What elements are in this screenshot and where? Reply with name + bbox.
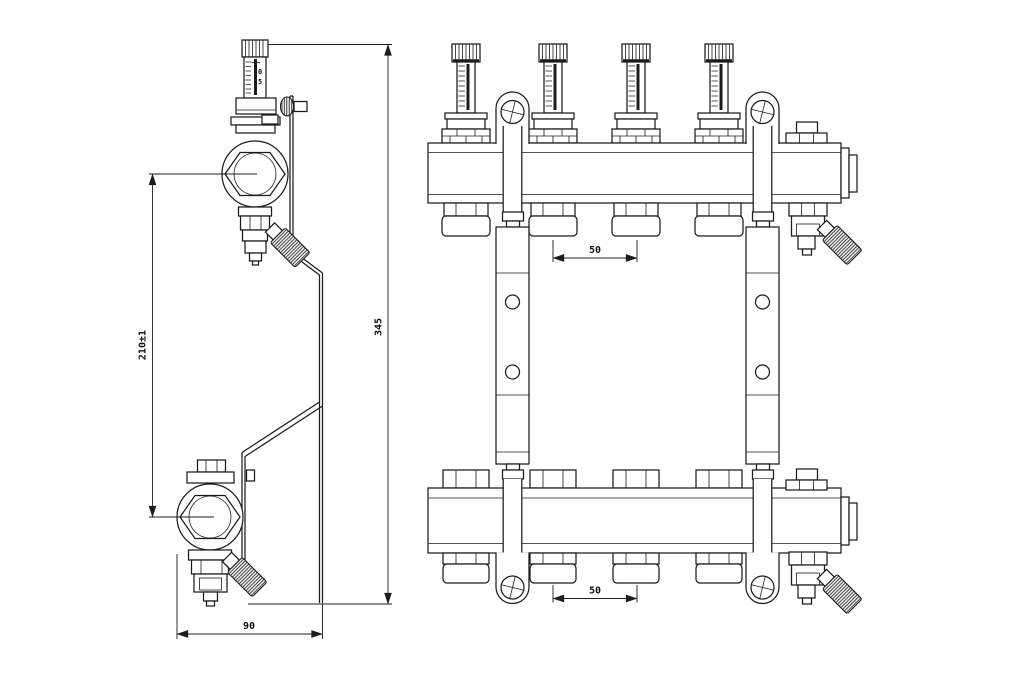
side-top-valve-assembly: 0 5 <box>222 40 310 267</box>
dimension-50-top: 50 <box>553 240 637 262</box>
top-bar-drain-valve <box>789 203 862 265</box>
bottom-bar-drain-valve <box>789 552 862 614</box>
flow-scale-zero-label: 0 <box>258 68 262 76</box>
side-bottom-valve-assembly <box>177 460 267 606</box>
dim-label-50-top: 50 <box>589 245 601 256</box>
dimension-50-bottom: 50 <box>553 585 637 603</box>
flow-scale-five-label: 5 <box>258 78 262 86</box>
dim-label-90: 90 <box>243 621 255 632</box>
side-view: 0 5 <box>138 40 393 639</box>
bracket-clamp-screw <box>281 97 308 116</box>
front-view: 50 50 <box>428 44 862 614</box>
manifold-technical-drawing: 0 5 <box>0 0 1019 693</box>
technical-drawing-canvas: 0 5 <box>0 0 1019 693</box>
dim-label-50-bottom: 50 <box>589 586 601 597</box>
dim-label-210: 210±1 <box>138 330 149 360</box>
dim-label-345: 345 <box>374 318 385 336</box>
